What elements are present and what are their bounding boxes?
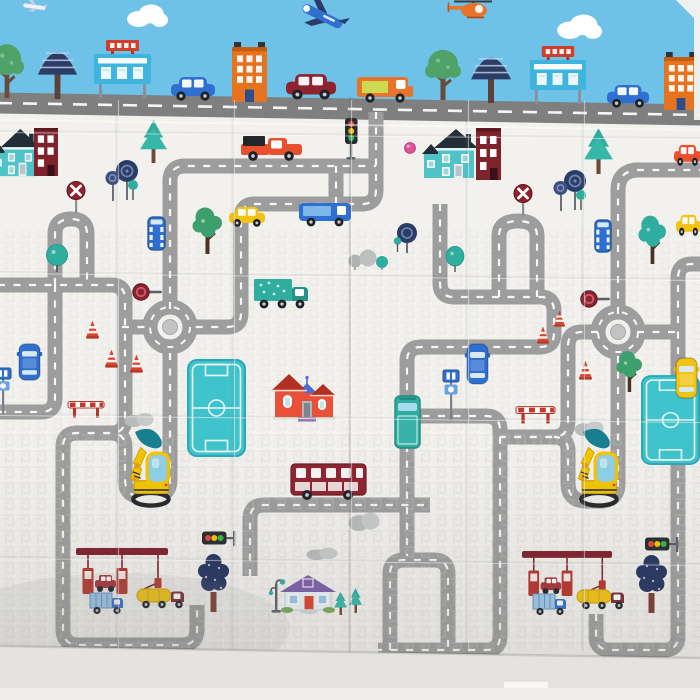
roundabout bbox=[598, 312, 638, 352]
bus-top-view bbox=[595, 220, 611, 252]
bus-top-view bbox=[148, 217, 165, 250]
brick-building bbox=[34, 128, 58, 176]
play-mat-photo bbox=[0, 0, 700, 700]
pink-ball bbox=[405, 143, 416, 154]
car-top-view bbox=[17, 344, 42, 380]
car-top-view bbox=[674, 358, 699, 398]
floor-bottom-strip bbox=[0, 688, 700, 700]
apartment-building bbox=[664, 52, 698, 110]
apartment-building bbox=[232, 42, 267, 102]
roundabout bbox=[150, 307, 190, 347]
